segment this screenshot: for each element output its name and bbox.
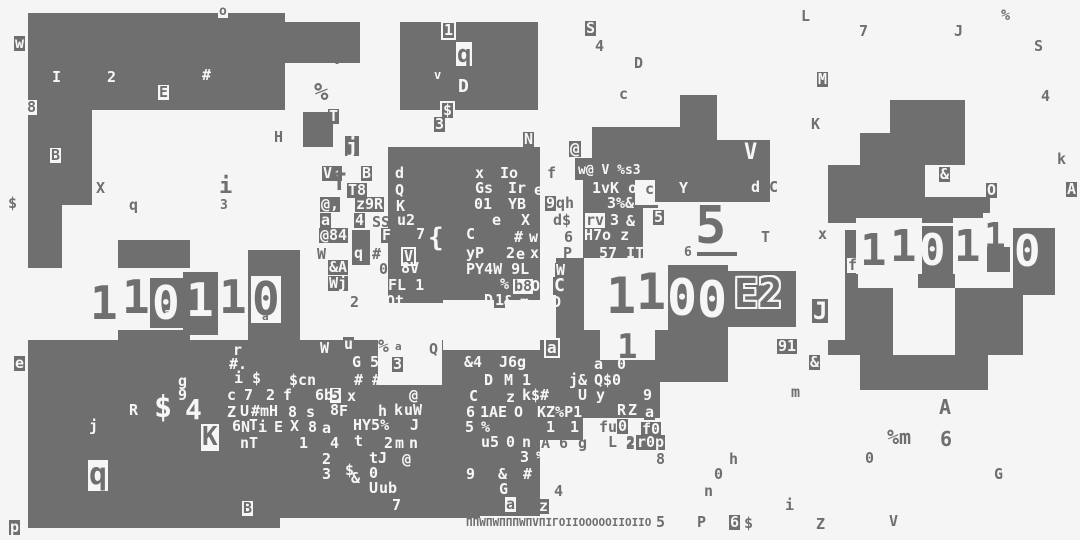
glyph: u2 xyxy=(397,213,415,228)
glyph: 3 xyxy=(392,357,403,372)
glyph: $cn xyxy=(288,373,317,388)
glyph: A xyxy=(1066,182,1077,197)
glyph: 8 xyxy=(307,420,318,435)
glyph: R xyxy=(129,403,138,418)
glyph: 5 xyxy=(653,210,664,225)
gray-block xyxy=(890,100,965,133)
glyph: g xyxy=(578,436,587,451)
glyph: Gs xyxy=(474,181,494,196)
glyph: O xyxy=(986,183,997,198)
glyph: E xyxy=(540,245,549,260)
glyph: J xyxy=(409,418,420,433)
glyph: Q xyxy=(429,342,438,357)
glyph: # xyxy=(514,230,523,245)
glyph: A 6 xyxy=(541,436,568,451)
glyph: 2 xyxy=(506,246,515,261)
gray-block xyxy=(860,133,965,165)
glyph: 1 xyxy=(90,280,118,327)
glyph: z xyxy=(538,499,549,514)
glyph: X xyxy=(96,181,105,196)
glyph: a xyxy=(544,338,560,358)
glyph: % xyxy=(536,450,545,465)
glyph: & xyxy=(939,167,950,182)
gray-block xyxy=(655,330,728,382)
glyph: 1 xyxy=(122,274,150,321)
glyph: 3 xyxy=(321,467,332,482)
glyph: 57 IT xyxy=(599,246,644,261)
glyph: i xyxy=(219,176,232,198)
glyph: @84 xyxy=(319,228,348,243)
glyph: e xyxy=(491,213,502,228)
glyph: u5 xyxy=(481,435,499,450)
glyph: j xyxy=(345,136,359,156)
glyph: N xyxy=(523,132,534,147)
glyph: Q xyxy=(395,183,404,198)
glyph: $ xyxy=(8,196,17,211)
glyph: Z xyxy=(627,403,638,418)
glyph: nT xyxy=(239,436,259,451)
glyph: q xyxy=(129,198,138,213)
gray-block xyxy=(828,340,893,355)
glyph: B xyxy=(361,166,372,181)
glyph: q xyxy=(456,42,472,66)
gray-block xyxy=(715,140,770,202)
glyph: T xyxy=(328,109,339,124)
glyph: W xyxy=(317,247,326,262)
glyph: 8 xyxy=(656,452,665,467)
glyph: 2 xyxy=(626,437,635,452)
glyph: z9R xyxy=(355,197,384,212)
glyph: Z xyxy=(816,517,825,532)
glyph: 1 xyxy=(219,274,247,321)
glyph: e xyxy=(14,356,25,371)
glyph: 4 xyxy=(554,484,563,499)
glyph: @, xyxy=(320,197,340,212)
glyph: w xyxy=(14,36,25,51)
glyph: F xyxy=(381,228,392,243)
glyph: qh xyxy=(556,196,574,211)
glyph: 3 xyxy=(220,199,228,212)
glyph: &A xyxy=(328,260,348,275)
glyph: f xyxy=(547,166,556,181)
glyph: 6 xyxy=(940,429,952,449)
glyph: 01 xyxy=(474,197,492,212)
glyph: %m xyxy=(887,427,911,447)
glyph: 6 xyxy=(684,246,692,259)
glyph: # # xyxy=(354,373,381,388)
glyph: 0 xyxy=(667,273,697,324)
glyph: h xyxy=(729,452,738,467)
gray-block xyxy=(28,205,62,268)
glyph: m xyxy=(520,295,529,310)
glyph: u xyxy=(343,337,354,352)
glyph: & xyxy=(809,355,820,370)
glyph: 1 xyxy=(890,225,917,270)
gray-block xyxy=(828,165,925,223)
glyph: X xyxy=(290,419,299,434)
glyph: m xyxy=(791,385,800,400)
glyph: d xyxy=(395,166,404,181)
glyph: B xyxy=(50,148,61,163)
glyph: % xyxy=(499,277,510,292)
glyph: AE xyxy=(489,405,507,420)
glyph: I xyxy=(52,70,61,85)
glyph: J6g xyxy=(499,355,526,370)
gray-block xyxy=(860,355,988,390)
glyph: ub xyxy=(379,481,397,496)
glyph: 7 xyxy=(392,498,401,513)
glyph: J xyxy=(812,299,828,323)
glyph: U xyxy=(368,481,379,496)
glyph: S xyxy=(1034,39,1043,54)
glyph: % xyxy=(1001,8,1010,23)
glyph: 6 xyxy=(729,515,740,530)
glyph: B xyxy=(242,501,253,516)
glyph: 4 xyxy=(330,436,339,451)
glyph: 4 xyxy=(354,213,365,228)
glyph: P xyxy=(697,515,706,530)
glyph: d xyxy=(751,180,760,195)
glyph: a xyxy=(395,341,402,352)
glyph: 9 xyxy=(643,388,652,403)
glyph: P xyxy=(563,246,572,261)
glyph: c xyxy=(227,388,236,403)
glyph: p xyxy=(9,520,20,535)
glyph: D xyxy=(483,373,494,388)
glyph: % xyxy=(378,338,389,356)
glyph: HY5% xyxy=(353,418,389,433)
glyph: w xyxy=(529,230,538,245)
glyph: J xyxy=(954,24,963,39)
glyph: $# xyxy=(531,388,549,403)
glyph: i $ xyxy=(234,371,261,386)
glyph: K xyxy=(201,424,219,451)
glyph: 9 xyxy=(465,467,476,482)
glyph: D xyxy=(458,78,469,96)
glyph: 4 xyxy=(595,39,604,54)
glyph: 0 xyxy=(1014,230,1041,275)
glyph: 0 xyxy=(379,262,388,277)
glyph: c xyxy=(619,87,628,102)
glyph: m xyxy=(394,436,405,451)
glyph: A xyxy=(939,397,951,417)
glyph: a xyxy=(644,405,655,420)
glyph: 3%& xyxy=(607,196,634,211)
glyph: a xyxy=(262,311,269,322)
glyph: R xyxy=(617,403,626,418)
glyph: a xyxy=(594,357,603,372)
glyph: E xyxy=(273,420,284,435)
glyph: q xyxy=(88,460,108,491)
glyph: q xyxy=(354,246,363,261)
glyph: 1 xyxy=(569,420,580,435)
glyph: 1 xyxy=(441,21,456,40)
glyph: 0 xyxy=(617,357,626,372)
glyph: j xyxy=(89,419,98,434)
glyph: 0 xyxy=(697,275,727,326)
glyph: Wj xyxy=(328,276,348,291)
glyph: K xyxy=(811,117,820,132)
glyph: S xyxy=(585,21,596,36)
glyph: r0p xyxy=(636,435,665,450)
glyph: x xyxy=(347,389,356,404)
glyph: 5 xyxy=(656,515,665,530)
glyph: @ xyxy=(569,141,581,157)
glyph: 8V xyxy=(401,261,419,276)
glyph: E xyxy=(158,85,169,100)
glyph: 1 xyxy=(636,267,666,318)
glyph: Y xyxy=(331,47,343,67)
glyph: PY4W 9L xyxy=(466,262,529,277)
glyph: 1 xyxy=(299,436,308,451)
glyph: c xyxy=(645,182,654,197)
glyph: T xyxy=(332,170,346,194)
glyph: k xyxy=(1057,152,1066,167)
glyph: 2 xyxy=(266,388,275,403)
glyph: Ir xyxy=(508,181,526,196)
glyph: @ xyxy=(401,452,412,467)
glyph: 0 xyxy=(919,229,946,274)
glyph: D xyxy=(634,56,643,71)
glyph: W xyxy=(320,341,329,356)
glyph: C xyxy=(466,227,475,242)
glyph: # xyxy=(523,467,532,482)
glyph: { xyxy=(428,225,444,252)
glyph: n xyxy=(704,484,713,499)
glyph: 0 xyxy=(506,435,515,450)
glyph: H7o z xyxy=(584,228,629,243)
glyph: 1 xyxy=(954,225,981,270)
glyph: v xyxy=(434,69,441,81)
glyph: 7 xyxy=(416,227,425,242)
glyph: w@ V %s3 xyxy=(578,164,641,177)
gray-block xyxy=(118,240,190,268)
glyph: X xyxy=(521,213,530,228)
glyph: yP xyxy=(466,246,484,261)
glyph: x xyxy=(529,246,540,261)
glyph: 91 xyxy=(777,339,797,354)
glyph: a xyxy=(164,307,171,319)
glyph: 4 xyxy=(185,396,202,425)
glyph: 3 xyxy=(519,450,530,465)
glyph: 6 xyxy=(564,230,573,245)
glyph: U y xyxy=(578,388,605,403)
glyph: 7 xyxy=(859,24,868,39)
glyph: % xyxy=(314,80,328,104)
glyph: & xyxy=(504,294,513,309)
glyph: V xyxy=(889,514,898,529)
glyph: 4 xyxy=(1041,89,1050,104)
glyph: 0 xyxy=(714,467,723,482)
glyph: H xyxy=(274,130,283,145)
glyph: & xyxy=(351,471,360,486)
glyph: E2 xyxy=(734,274,782,315)
gray-block xyxy=(283,22,360,63)
glyph: 1 xyxy=(860,229,887,274)
glyph: # xyxy=(202,68,211,83)
glyph: ΠΠWΠWΠΠΠWΠVΠIΓOIIOOOOOIIOIIO xyxy=(466,517,651,528)
gray-block xyxy=(28,13,285,110)
glyph: f xyxy=(283,388,292,403)
glyph: a xyxy=(505,497,516,512)
glyph: 5 xyxy=(464,420,475,435)
glyph: 7 xyxy=(244,388,253,403)
glyph: e xyxy=(534,183,543,198)
gray-block xyxy=(680,95,717,127)
glyph: YB xyxy=(508,197,526,212)
glyph: M xyxy=(817,72,828,87)
glyph: t xyxy=(353,434,364,449)
gray-block xyxy=(955,340,1020,355)
glyph: D xyxy=(552,295,561,310)
glyph: 2 xyxy=(350,295,359,310)
glyph: 1 xyxy=(984,219,1006,256)
glyph: T xyxy=(761,230,770,245)
glyph: 3 xyxy=(434,117,445,132)
glyph: $ xyxy=(154,393,172,424)
glyph: F xyxy=(339,404,348,419)
glyph: k xyxy=(393,403,404,418)
glyph: C xyxy=(769,180,778,195)
glyph: &4 xyxy=(463,355,483,370)
glyph: 5 xyxy=(695,200,726,253)
glyph: FL 1 xyxy=(388,278,424,293)
glyph: 1 xyxy=(186,277,214,324)
glyph: i xyxy=(785,498,794,513)
glyph: 9 xyxy=(545,196,556,211)
glyph: f xyxy=(847,258,858,273)
glyph: 0 xyxy=(617,419,628,434)
glyph: $ xyxy=(744,516,753,531)
glyph: d$ xyxy=(553,213,571,228)
glyph: O xyxy=(513,405,524,420)
glitch-canvas: owI2#E8B$Xqi3Y%TH1qvD$3NS4DcL7J%SM4Kk&OA… xyxy=(0,0,1080,540)
glyph: o xyxy=(218,5,228,18)
glyph: V xyxy=(744,142,757,164)
glyph: L xyxy=(801,9,810,24)
glyph: C xyxy=(469,389,478,404)
glyph: G xyxy=(993,467,1004,482)
glyph: 1 xyxy=(606,271,636,322)
glyph: i xyxy=(257,420,268,435)
glyph: 8 xyxy=(26,100,37,115)
glyph: G 5 xyxy=(352,355,379,370)
glyph: 2 xyxy=(107,70,116,85)
glyph: 1 xyxy=(546,420,555,435)
glyph: 0 xyxy=(864,451,875,466)
gray-block xyxy=(28,518,280,528)
glyph: n xyxy=(409,436,418,451)
glyph: Qt xyxy=(386,294,404,309)
glyph: x xyxy=(818,227,827,242)
glyph: Y xyxy=(679,181,688,196)
glyph: D xyxy=(484,293,493,308)
